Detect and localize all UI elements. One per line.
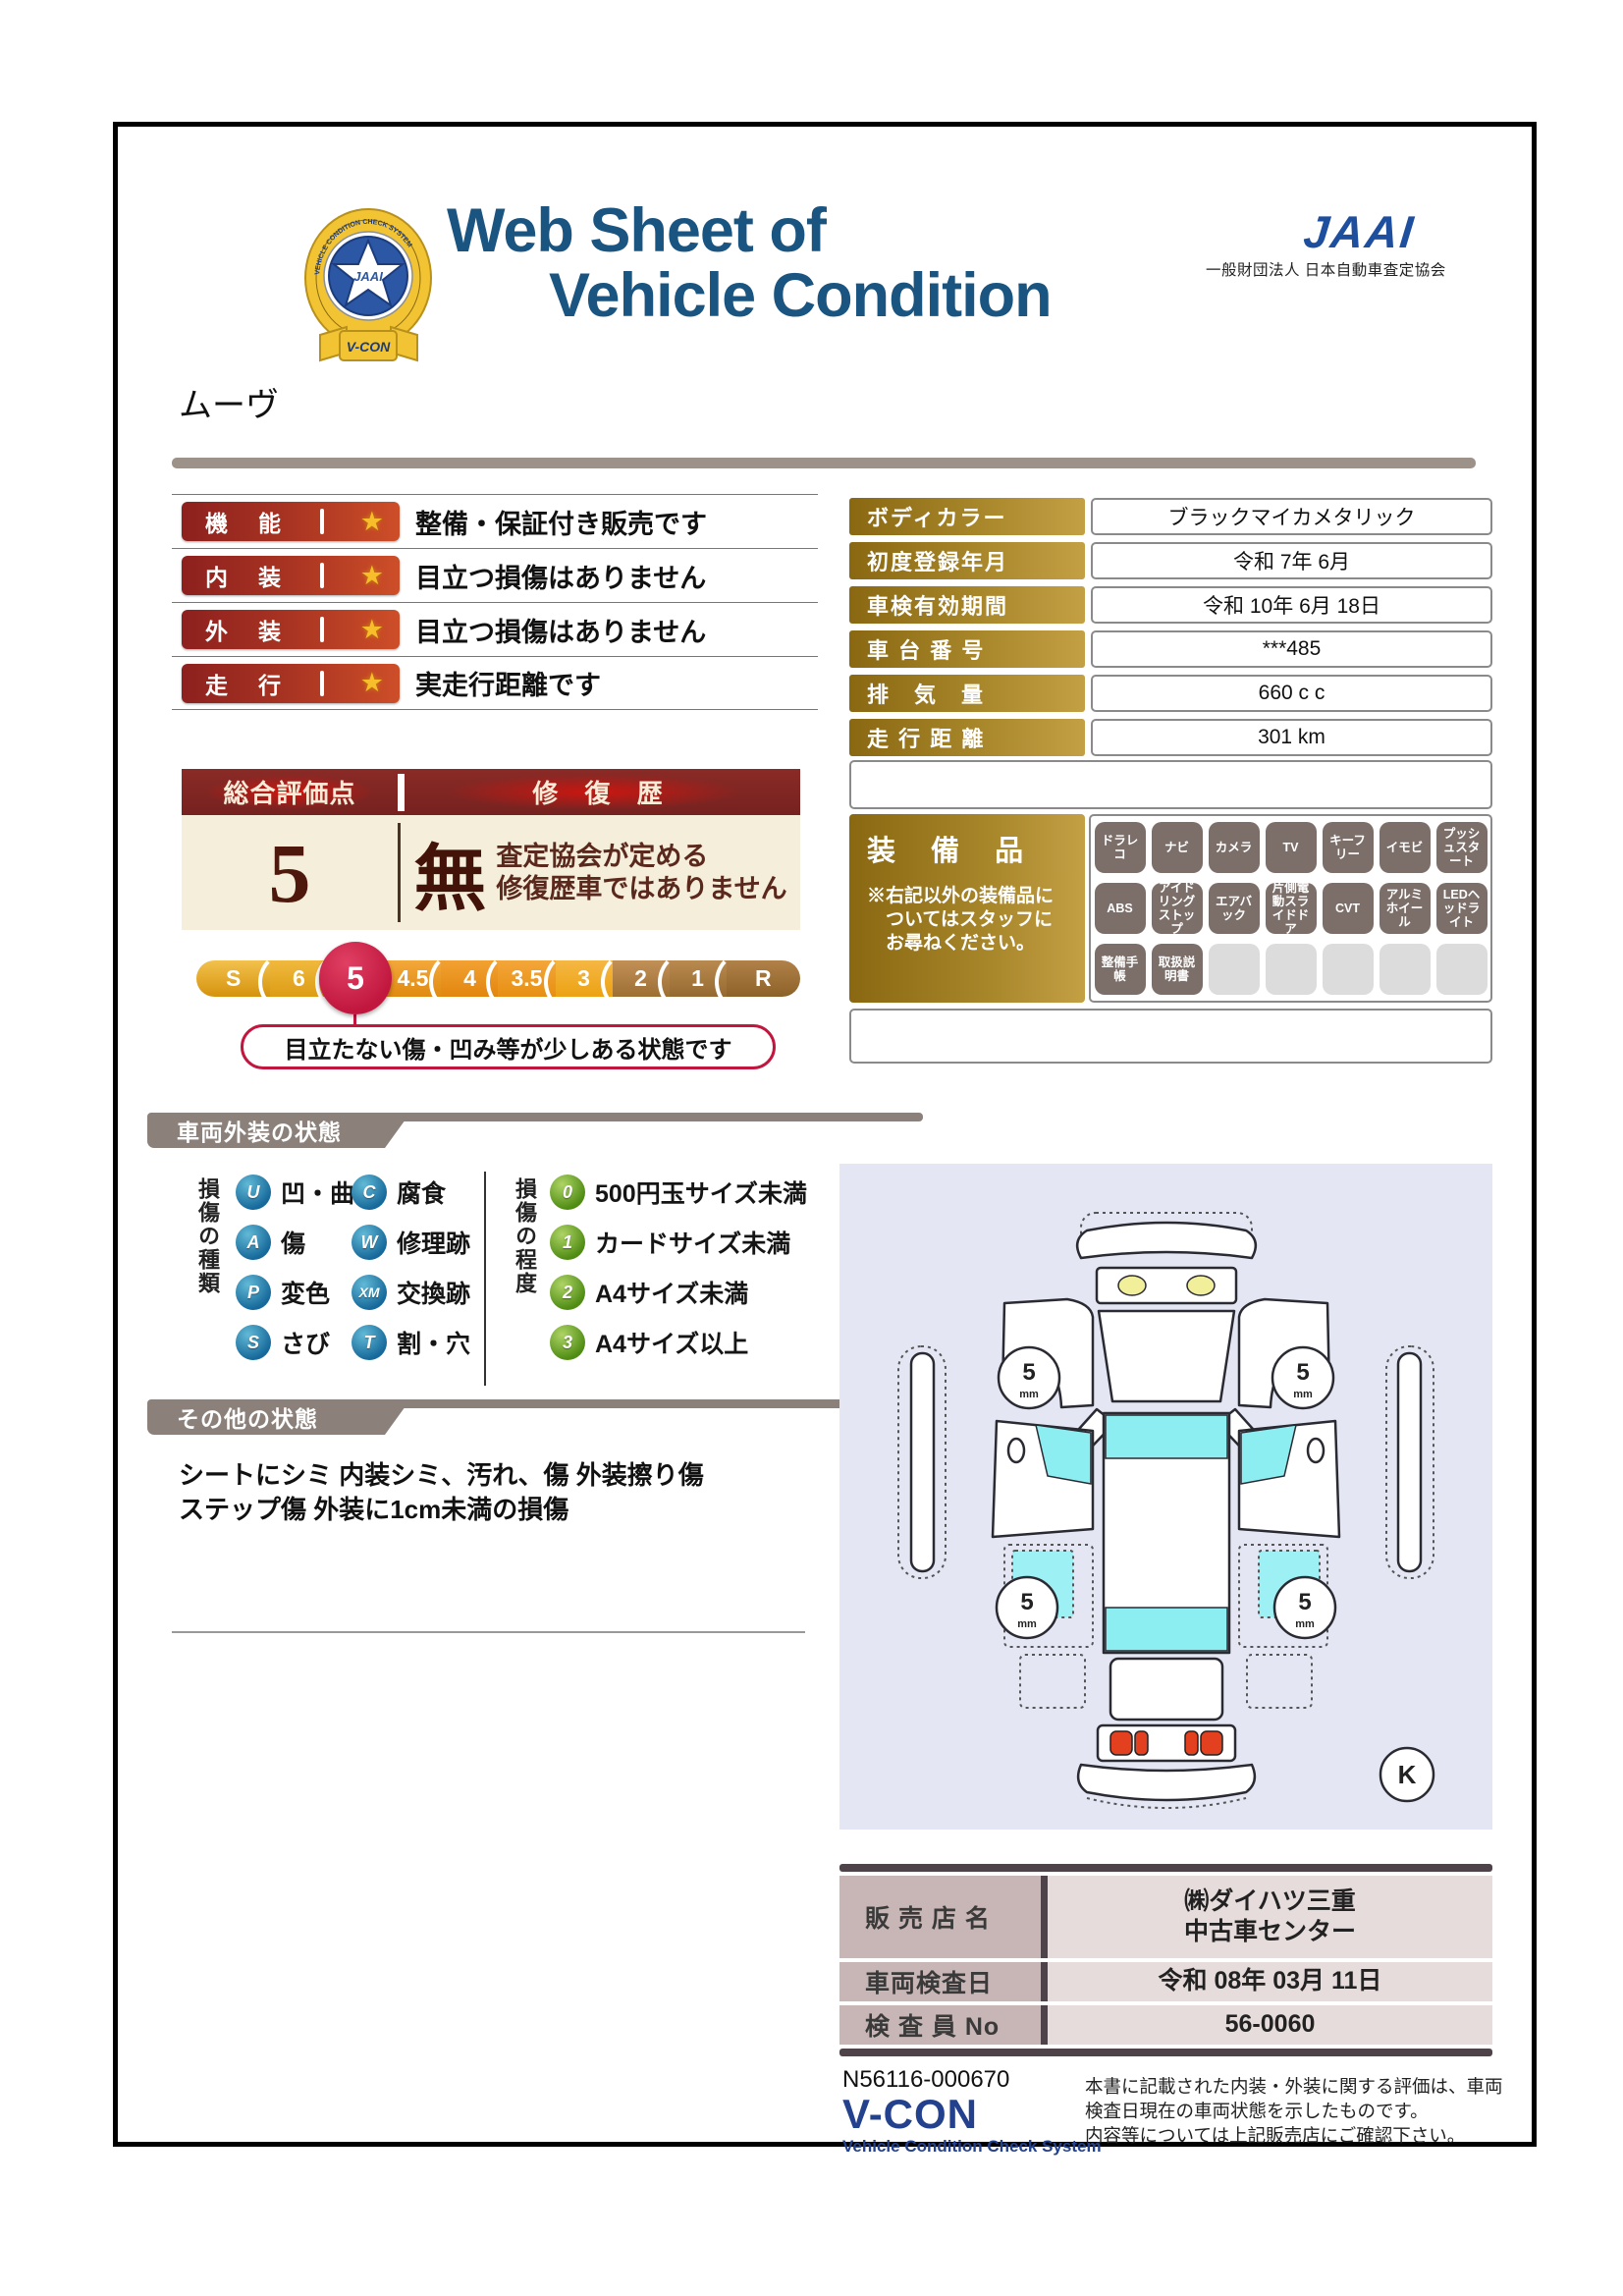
dealer-name-line2: 中古車センター — [1184, 1917, 1356, 1947]
score-scale-region: S 6 4.5 4 3.5 3 2 1 R 5 目立たない傷・凹み等が少しある状… — [182, 932, 800, 1079]
rating-desc: 目立つ損傷はありません — [415, 611, 706, 649]
scale-segment-label: S — [226, 965, 241, 992]
rating-label: 走 行 — [205, 667, 285, 700]
disclaimer-line2: 検査日現在の車両状態を示したものです。 — [1085, 2099, 1505, 2123]
info-value: 令和 7年 6月 — [1091, 542, 1492, 579]
callout-connector — [353, 1014, 356, 1026]
info-value: ***485 — [1091, 630, 1492, 668]
equipment-badge: 取扱説明書 — [1152, 944, 1203, 995]
legend-item: 1カードサイズ未満 — [550, 1225, 790, 1260]
divider-bar — [320, 509, 324, 534]
vehicle-info-table: ボディカラー ブラックマイカメタリック 初度登録年月 令和 7年 6月 車検有効… — [849, 498, 1492, 763]
rating-row-interior: 内 装 ★ 目立つ損傷はありません — [172, 548, 818, 602]
star-icon: ★ — [360, 615, 384, 645]
dealer-name-line1: ㈱ダイハツ三重 — [1184, 1886, 1356, 1917]
star-icon: ★ — [360, 561, 384, 591]
equipment-badge: LEDヘッドライト — [1436, 883, 1488, 934]
rating-desc: 実走行距離です — [415, 664, 601, 702]
legend-item: 0500円玉サイズ未満 — [550, 1175, 807, 1210]
equipment-badge-empty — [1436, 944, 1488, 995]
rating-desc: 整備・保証付き販売です — [415, 503, 707, 541]
table-row: ボディカラー ブラックマイカメタリック — [849, 498, 1492, 535]
rating-row-mileage: 走 行 ★ 実走行距離です — [172, 656, 818, 710]
inspector-no-value: 56-0060 — [1048, 2005, 1492, 2045]
equipment-title: 装 備 品 — [867, 828, 1085, 869]
inspection-date-value: 令和 08年 03月 11日 — [1048, 1962, 1492, 2001]
legend-item: 3A4サイズ以上 — [550, 1325, 748, 1360]
table-row-inspection-date: 車両検査日 令和 08年 03月 11日 — [839, 1962, 1492, 2001]
equipment-badge-empty — [1380, 944, 1431, 995]
damage-legend: 損傷の種類 U凹・曲 C腐食 A傷 W修理跡 P変色 XM交換跡 Sさび T割・… — [182, 1170, 869, 1395]
divider-bar — [320, 563, 324, 588]
svg-text:mm: mm — [1293, 1389, 1313, 1400]
empty-field — [849, 1009, 1492, 1064]
repair-desc-line1: 査定協会が定める — [496, 842, 708, 871]
corner-mark: K — [1380, 1748, 1434, 1801]
overall-score-value: 5 — [182, 815, 398, 930]
scale-segment-label: 3.5 — [512, 965, 543, 992]
page-title: Web Sheet of Vehicle Condition — [447, 199, 1052, 328]
damage-code-badge: P — [236, 1275, 271, 1310]
vcon-brand-subtitle: Vehicle Condition Check System — [842, 2137, 1102, 2157]
vehicle-name: ムーヴ — [179, 378, 279, 426]
legend-item: P変色 — [236, 1275, 330, 1310]
overall-score-block: 総合評価点 修 復 歴 5 無 査定協会が定める 修復歴車ではありません — [182, 769, 800, 930]
other-condition-header: その他の状態 — [147, 1399, 923, 1435]
disclaimer-line3: 内容等については上記販売店にご確認下さい。 — [1085, 2123, 1505, 2148]
repair-history: 無 査定協会が定める 修復歴車ではありません — [401, 815, 800, 930]
equipment-note-line1: ※右記以外の装備品に — [867, 886, 1054, 906]
repair-history-value: 無 — [413, 820, 486, 925]
scale-segment-label: 6 — [293, 965, 305, 992]
damage-code-desc: 割・穴 — [397, 1325, 470, 1360]
divider-bar — [320, 617, 324, 642]
info-label: 排 気 量 — [849, 675, 1085, 712]
rating-row-exterior: 外 装 ★ 目立つ損傷はありません — [172, 602, 818, 656]
equipment-badge: ドラレコ — [1095, 822, 1146, 873]
document-number: N56116-000670 — [842, 2066, 1102, 2094]
equipment-badge: プッシュスタート — [1436, 822, 1488, 873]
car-center — [1077, 1213, 1256, 1808]
dealer-table: 販 売 店 名 ㈱ダイハツ三重 中古車センター 車両検査日 令和 08年 03月… — [839, 1864, 1492, 2056]
damage-code-badge: T — [352, 1325, 387, 1360]
damage-code-badge: U — [236, 1175, 271, 1210]
damage-code-desc: 変色 — [281, 1275, 330, 1310]
equipment-badge-empty — [1209, 944, 1260, 995]
damage-code-desc: さび — [281, 1325, 330, 1360]
svg-text:5: 5 — [1296, 1359, 1309, 1386]
table-top-bar — [839, 1864, 1492, 1872]
rating-badge: 内 装 ★ — [182, 556, 400, 595]
divider-bar — [1041, 1876, 1048, 1958]
page-title-line1: Web Sheet of — [447, 199, 1052, 264]
scale-segment-label: 4 — [463, 965, 476, 992]
degree-code-badge: 3 — [550, 1325, 585, 1360]
equipment-badge: ABS — [1095, 883, 1146, 934]
footer-brand-block: N56116-000670 V-CON Vehicle Condition Ch… — [842, 2066, 1102, 2157]
svg-text:5: 5 — [1298, 1589, 1311, 1615]
equipment-badge: エアバック — [1209, 883, 1260, 934]
damage-type-label: 損傷の種類 — [191, 1177, 223, 1295]
divider-line — [172, 1631, 805, 1633]
legend-divider — [484, 1172, 486, 1386]
legend-item: XM交換跡 — [352, 1275, 470, 1310]
legend-item: W修理跡 — [352, 1225, 470, 1260]
rating-row-function: 機 能 ★ 整備・保証付き販売です — [172, 494, 818, 548]
equipment-badge: TV — [1266, 822, 1317, 873]
equipment-badge-grid: ドラレコ ナビ カメラ TV キーフリー イモビ プッシュスタート ABS アイ… — [1089, 814, 1492, 1003]
rating-badge: 機 能 ★ — [182, 502, 400, 541]
divider-bar — [1041, 1962, 1048, 2001]
equipment-badge: CVT — [1323, 883, 1374, 934]
rating-label: 内 装 — [205, 559, 285, 592]
repair-desc-line2: 修復歴車ではありません — [496, 874, 786, 903]
overall-score-body: 5 無 査定協会が定める 修復歴車ではありません — [182, 815, 800, 930]
degree-code-badge: 0 — [550, 1175, 585, 1210]
divider-rule — [172, 458, 1476, 468]
equipment-badge: イモビ — [1380, 822, 1431, 873]
degree-code-badge: 1 — [550, 1225, 585, 1260]
table-row: 車 台 番 号 ***485 — [849, 630, 1492, 668]
score-scale-bar: S 6 4.5 4 3.5 3 2 1 R — [196, 960, 800, 997]
legend-item: Sさび — [236, 1325, 330, 1360]
equipment-badge: 整備手帳 — [1095, 944, 1146, 995]
emblem-ribbon-text: V-CON — [347, 339, 391, 355]
vcon-brand: V-CON — [842, 2094, 1102, 2135]
svg-text:5: 5 — [1022, 1359, 1035, 1386]
equipment-note-line3: お尋ねください。 — [867, 932, 1085, 956]
scale-segment-label: 4.5 — [397, 965, 428, 992]
empty-field — [849, 760, 1492, 809]
degree-desc: A4サイズ以上 — [595, 1325, 748, 1360]
damage-code-desc: 傷 — [281, 1225, 305, 1260]
damage-code-badge: C — [352, 1175, 387, 1210]
scale-segment-label: R — [755, 965, 772, 992]
svg-text:mm: mm — [1295, 1618, 1315, 1630]
other-condition-title: その他の状態 — [177, 1400, 318, 1434]
scale-segment: R — [727, 960, 800, 997]
info-label: ボディカラー — [849, 498, 1085, 535]
legend-item: T割・穴 — [352, 1325, 470, 1360]
divider-bar — [398, 774, 405, 811]
rating-badge: 走 行 ★ — [182, 664, 400, 703]
dealer-name-label: 販 売 店 名 — [839, 1876, 1041, 1958]
damage-code-badge: XM — [352, 1275, 387, 1310]
equipment-block: 装 備 品 ※右記以外の装備品に ついてはスタッフに お尋ねください。 ドラレコ… — [849, 814, 1492, 1003]
header-block: その他の状態 — [147, 1399, 410, 1435]
star-icon: ★ — [360, 507, 384, 537]
table-row-dealer-name: 販 売 店 名 ㈱ダイハツ三重 中古車センター — [839, 1876, 1492, 1958]
damage-degree-label: 損傷の程度 — [509, 1177, 540, 1295]
star-icon: ★ — [360, 668, 384, 698]
equipment-badge: アルミホイール — [1380, 883, 1431, 934]
dealer-name-value: ㈱ダイハツ三重 中古車センター — [1048, 1876, 1492, 1958]
info-value: 令和 10年 6月 18日 — [1091, 586, 1492, 624]
jaai-association-name: 一般財団法人 日本自動車査定協会 — [1206, 258, 1446, 280]
damage-code-desc: 腐食 — [397, 1175, 446, 1210]
table-row: 排 気 量 660 c c — [849, 675, 1492, 712]
table-row: 車検有効期間 令和 10年 6月 18日 — [849, 586, 1492, 624]
repair-history-desc: 査定協会が定める 修復歴車ではありません — [496, 841, 786, 904]
info-label: 走 行 距 離 — [849, 719, 1085, 756]
legend-item: U凹・曲 — [236, 1175, 354, 1210]
car-damage-diagram: 5 mm 5 mm 5 mm 5 mm K — [839, 1164, 1492, 1830]
damage-code-badge: S — [236, 1325, 271, 1360]
damage-code-desc: 凹・曲 — [281, 1175, 354, 1210]
degree-code-badge: 2 — [550, 1275, 585, 1310]
scale-segment-label: 1 — [691, 965, 704, 992]
damage-code-badge: A — [236, 1225, 271, 1260]
table-bottom-bar — [839, 2049, 1492, 2056]
rating-badge: 外 装 ★ — [182, 610, 400, 649]
rating-desc: 目立つ損傷はありません — [415, 557, 706, 595]
equipment-badge: アイドリングストップ — [1152, 883, 1203, 934]
rating-label: 外 装 — [205, 613, 285, 646]
table-row: 初度登録年月 令和 7年 6月 — [849, 542, 1492, 579]
disclaimer-line1: 本書に記載された内装・外装に関する評価は、車両 — [1085, 2074, 1505, 2099]
legend-item: 2A4サイズ未満 — [550, 1275, 748, 1310]
other-condition-line1: シートにシミ 内装シミ、汚れ、傷 外装擦り傷 — [179, 1458, 704, 1493]
degree-desc: A4サイズ未満 — [595, 1275, 748, 1310]
svg-text:5: 5 — [1020, 1589, 1033, 1615]
repair-history-title: 修 復 歴 — [405, 774, 800, 810]
overall-score-header: 総合評価点 修 復 歴 — [182, 769, 800, 815]
header-block: 車両外装の状態 — [147, 1113, 410, 1148]
sheet-frame: JAAI VEHICLE CONDITION CHECK SYSTEM V-CO… — [113, 122, 1537, 2147]
exterior-condition-title: 車両外装の状態 — [177, 1114, 342, 1147]
scale-segment-label: 2 — [634, 965, 647, 992]
info-value: 301 km — [1091, 719, 1492, 756]
score-callout: 目立たない傷・凹み等が少しある状態です — [241, 1024, 776, 1069]
table-row-inspector-no: 検 査 員 No 56-0060 — [839, 2005, 1492, 2045]
svg-text:mm: mm — [1019, 1389, 1039, 1400]
info-label: 初度登録年月 — [849, 542, 1085, 579]
damage-code-desc: 修理跡 — [397, 1225, 470, 1260]
legend-item: A傷 — [236, 1225, 305, 1260]
rating-list: 機 能 ★ 整備・保証付き販売です 内 装 ★ 目立つ損傷はありません 外 装 … — [172, 494, 818, 710]
scale-segment-label: 3 — [577, 965, 590, 992]
info-label: 車検有効期間 — [849, 586, 1085, 624]
degree-desc: カードサイズ未満 — [595, 1225, 790, 1260]
equipment-badge: カメラ — [1209, 822, 1260, 873]
divider-bar — [320, 671, 324, 696]
overall-score-title: 総合評価点 — [182, 774, 398, 810]
info-value: ブラックマイカメタリック — [1091, 498, 1492, 535]
page-title-line2: Vehicle Condition — [447, 264, 1052, 329]
table-row: 走 行 距 離 301 km — [849, 719, 1492, 756]
selected-score-marker: 5 — [319, 942, 392, 1014]
divider-bar — [1041, 2005, 1048, 2045]
exterior-condition-header: 車両外装の状態 — [147, 1113, 923, 1148]
other-condition-text: シートにシミ 内装シミ、汚れ、傷 外装擦り傷 ステップ傷 外装に1cm未満の損傷 — [179, 1458, 704, 1527]
vcon-emblem: JAAI VEHICLE CONDITION CHECK SYSTEM V-CO… — [302, 205, 435, 372]
inspection-date-label: 車両検査日 — [839, 1962, 1041, 2001]
degree-desc: 500円玉サイズ未満 — [595, 1175, 807, 1210]
emblem-jaai-text: JAAI — [353, 269, 383, 284]
other-condition-line2: ステップ傷 外装に1cm未満の損傷 — [179, 1493, 704, 1527]
inspector-no-label: 検 査 員 No — [839, 2005, 1041, 2045]
legend-item: C腐食 — [352, 1175, 446, 1210]
equipment-badge: 片側電動スライドドア — [1266, 883, 1317, 934]
equipment-note-line2: ついてはスタッフに — [867, 908, 1085, 932]
damage-code-desc: 交換跡 — [397, 1275, 470, 1310]
equipment-note: ※右記以外の装備品に ついてはスタッフに お尋ねください。 — [867, 885, 1085, 955]
damage-code-badge: W — [352, 1225, 387, 1260]
equipment-badge: キーフリー — [1323, 822, 1374, 873]
svg-text:mm: mm — [1017, 1618, 1037, 1630]
jaai-logo: JAAI — [1301, 205, 1417, 258]
info-label: 車 台 番 号 — [849, 630, 1085, 668]
footer-disclaimer: 本書に記載された内装・外装に関する評価は、車両 検査日現在の車両状態を示したもの… — [1085, 2074, 1505, 2148]
equipment-label-panel: 装 備 品 ※右記以外の装備品に ついてはスタッフに お尋ねください。 — [849, 814, 1085, 1003]
svg-text:K: K — [1398, 1760, 1417, 1789]
equipment-badge: ナビ — [1152, 822, 1203, 873]
equipment-badge-empty — [1266, 944, 1317, 995]
info-value: 660 c c — [1091, 675, 1492, 712]
car-left-side — [898, 1299, 1114, 1708]
equipment-badge-empty — [1323, 944, 1374, 995]
rating-label: 機 能 — [205, 505, 285, 538]
